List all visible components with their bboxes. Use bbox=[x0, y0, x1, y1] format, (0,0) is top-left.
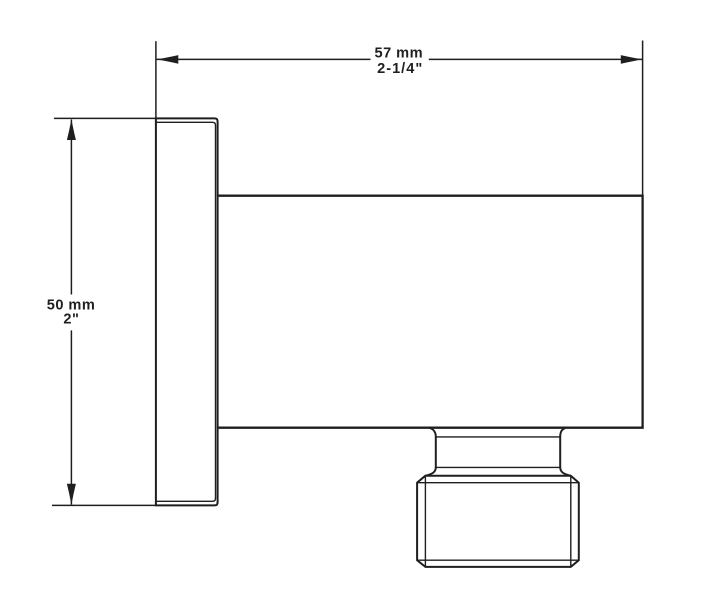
svg-text:57 mm: 57 mm bbox=[375, 45, 424, 61]
svg-text:2": 2" bbox=[63, 312, 79, 328]
svg-text:2-1/4": 2-1/4" bbox=[377, 61, 423, 77]
